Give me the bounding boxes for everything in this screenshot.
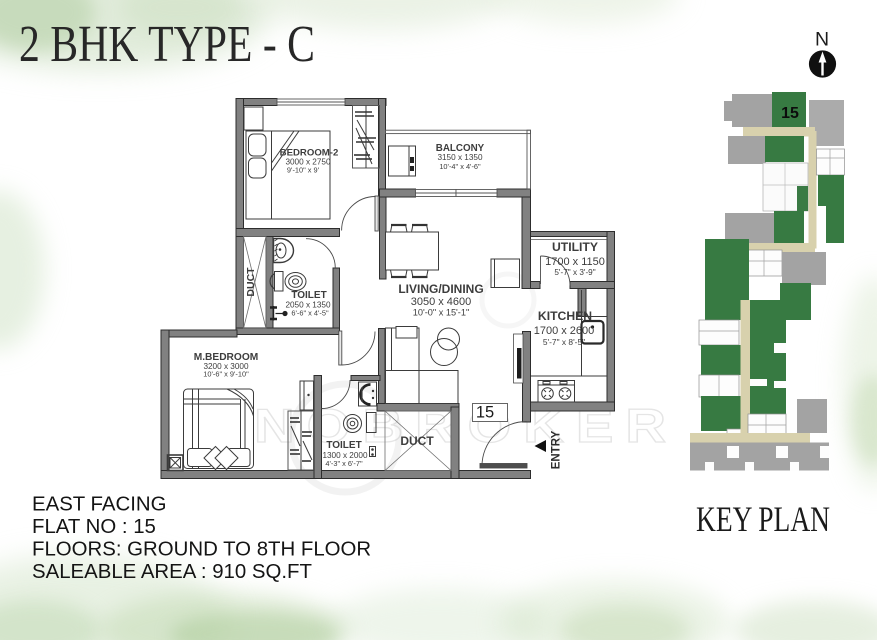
svg-text:SALEABLE AREA : 910 SQ.FT: SALEABLE AREA : 910 SQ.FT <box>32 561 312 583</box>
svg-text:4'-3" x 6'-7": 4'-3" x 6'-7" <box>325 459 363 468</box>
svg-text:1700 x 2600: 1700 x 2600 <box>534 325 595 337</box>
svg-text:10'-4" x 4'-6": 10'-4" x 4'-6" <box>439 162 481 171</box>
svg-text:5'-7" x 3'-9": 5'-7" x 3'-9" <box>554 268 595 277</box>
svg-text:EAST FACING: EAST FACING <box>32 494 166 516</box>
svg-text:1700 x 1150: 1700 x 1150 <box>545 256 605 268</box>
svg-text:ENTRY: ENTRY <box>551 430 563 469</box>
svg-text:6'-6" x 4'-5": 6'-6" x 4'-5" <box>291 309 329 318</box>
svg-text:2 BHK TYPE - C: 2 BHK TYPE - C <box>19 16 315 73</box>
svg-text:FLAT NO : 15: FLAT NO : 15 <box>32 516 156 538</box>
svg-text:5'-7" x 8'-5": 5'-7" x 8'-5" <box>543 337 585 347</box>
svg-text:9'-10" x 9': 9'-10" x 9' <box>287 166 320 175</box>
svg-text:15: 15 <box>781 105 799 122</box>
svg-text:KEY PLAN: KEY PLAN <box>696 499 830 539</box>
svg-text:DUCT: DUCT <box>245 267 257 297</box>
svg-text:N: N <box>815 29 829 51</box>
svg-text:FLOORS: GROUND TO 8TH FLOOR: FLOORS: GROUND TO 8TH FLOOR <box>32 539 371 561</box>
svg-text:KITCHEN: KITCHEN <box>538 309 592 323</box>
svg-text:3150 x 1350: 3150 x 1350 <box>437 153 483 162</box>
svg-text:UTILITY: UTILITY <box>552 240 598 254</box>
svg-text:LIVING/DINING: LIVING/DINING <box>398 282 483 296</box>
svg-text:DUCT: DUCT <box>400 434 434 448</box>
svg-text:15: 15 <box>476 404 494 422</box>
svg-text:TOILET: TOILET <box>291 290 326 301</box>
svg-text:3050 x 4600: 3050 x 4600 <box>411 296 472 308</box>
svg-text:10'-0" x 15'-1": 10'-0" x 15'-1" <box>413 308 470 318</box>
svg-text:10'-6" x 9'-10": 10'-6" x 9'-10" <box>203 370 249 379</box>
svg-text:TOILET: TOILET <box>326 440 361 451</box>
